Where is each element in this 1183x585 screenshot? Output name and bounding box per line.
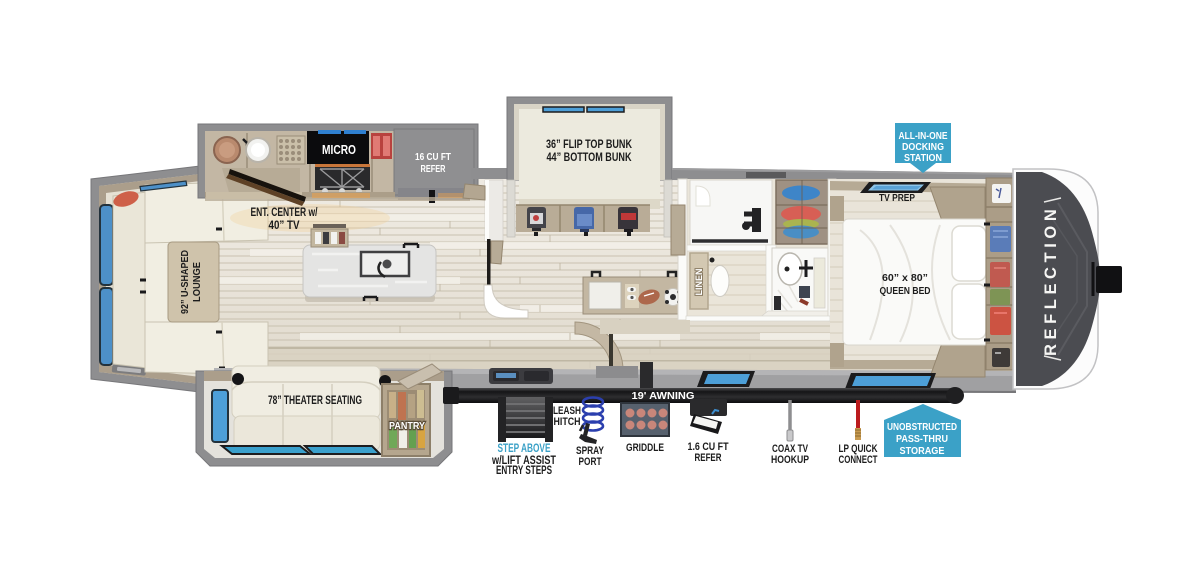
svg-text:LINEN: LINEN [694,269,704,296]
svg-text:STORAGE: STORAGE [900,445,945,457]
svg-text:HOOKUP: HOOKUP [771,454,809,466]
svg-text:78” THEATER SEATING: 78” THEATER SEATING [268,395,362,407]
svg-text:ENTRY STEPS: ENTRY STEPS [496,465,552,477]
svg-text:HITCH: HITCH [554,416,581,428]
svg-text:36” FLIP TOP BUNK: 36” FLIP TOP BUNK [546,139,633,151]
svg-text:UNOBSTRUCTED: UNOBSTRUCTED [887,421,957,433]
svg-text:REFLECTION: REFLECTION [1042,206,1060,356]
svg-text:16 CU FT: 16 CU FT [415,151,451,163]
svg-text:19' AWNING: 19' AWNING [632,390,695,402]
svg-text:LOUNGE: LOUNGE [191,262,203,302]
svg-text:STATION: STATION [904,153,942,164]
svg-text:STEP ABOVE: STEP ABOVE [498,443,551,455]
svg-text:GRIDDLE: GRIDDLE [626,442,664,454]
svg-text:ENT. CENTER w/: ENT. CENTER w/ [251,205,318,219]
svg-text:40” TV: 40” TV [269,218,300,232]
svg-text:60” x 80”: 60” x 80” [882,272,928,284]
svg-text:92” U-SHAPED: 92” U-SHAPED [179,250,191,314]
svg-text:ALL-IN-ONE: ALL-IN-ONE [899,131,948,142]
svg-text:REFER: REFER [695,452,722,464]
svg-text:MICRO: MICRO [322,143,356,157]
svg-text:DOCKING: DOCKING [902,142,944,153]
svg-text:PANTRY: PANTRY [389,420,425,432]
svg-text:CONNECT: CONNECT [839,454,878,466]
svg-text:PASS-THRU: PASS-THRU [896,433,948,445]
svg-text:44” BOTTOM BUNK: 44” BOTTOM BUNK [547,152,633,164]
svg-text:PORT: PORT [579,456,602,468]
svg-text:REFER: REFER [421,163,446,175]
svg-text:TV PREP: TV PREP [879,193,915,204]
svg-text:QUEEN BED: QUEEN BED [880,285,931,297]
